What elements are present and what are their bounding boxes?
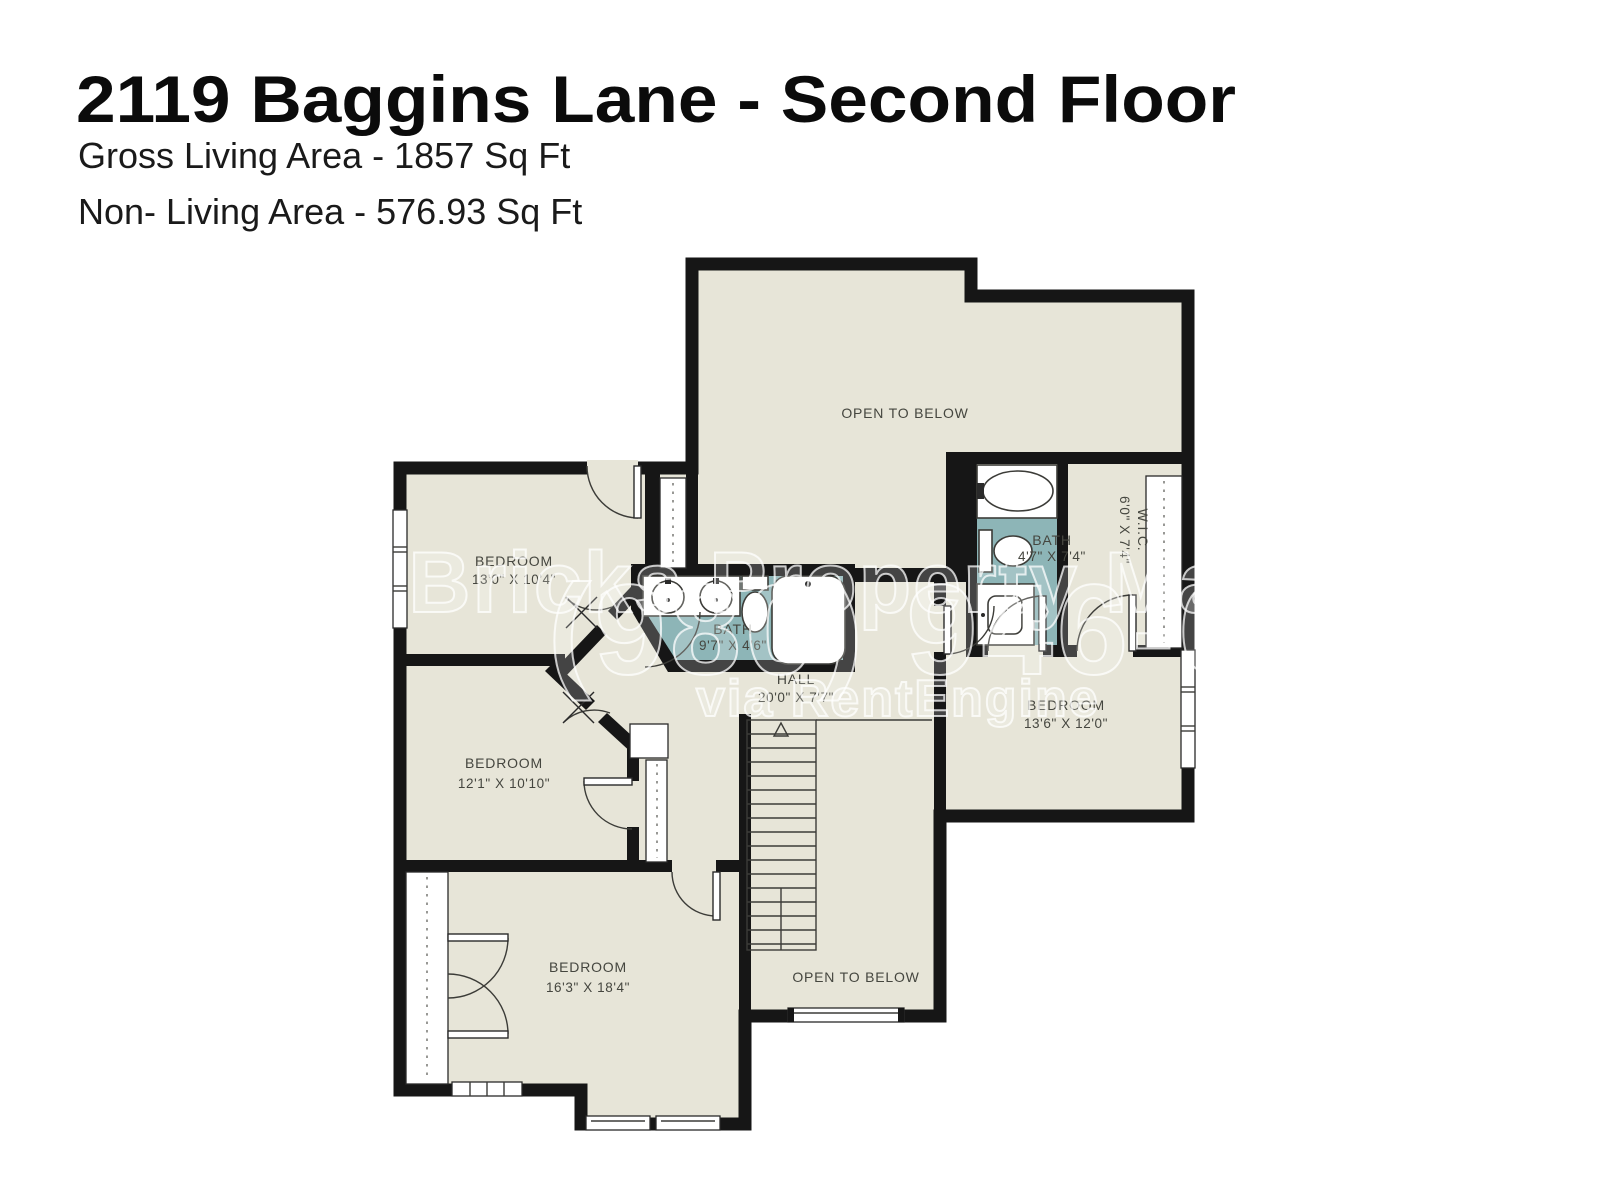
- floor-plan-canvas: 2119 Baggins Lane - Second Floor Gross L…: [0, 0, 1600, 1200]
- dims-bedroom-bottom: 16'3" X 18'4": [546, 980, 630, 995]
- gross-living-area: Gross Living Area - 1857 Sq Ft: [78, 135, 570, 176]
- window-bedroom-bottom-1: [452, 1082, 522, 1096]
- window-bedroom-bottom-3: [656, 1116, 720, 1130]
- non-living-area: Non- Living Area - 576.93 Sq Ft: [78, 191, 582, 232]
- window-open-below-bottom: [788, 1008, 904, 1022]
- floor-plan-page: 2119 Baggins Lane - Second Floor Gross L…: [0, 0, 1600, 1200]
- label-open-to-below-bottom: OPEN TO BELOW: [792, 969, 919, 985]
- window-bedroom-bottom-2: [586, 1116, 650, 1130]
- label-bedroom-mid-left: BEDROOM: [465, 755, 543, 771]
- watermark-line3: via RentEngine: [696, 670, 1100, 728]
- bathtub-right-icon: [977, 465, 1057, 518]
- bottom-bedroom-closet: [406, 872, 448, 1084]
- label-open-to-below-top: OPEN TO BELOW: [841, 405, 968, 421]
- page-title: 2119 Baggins Lane - Second Floor: [76, 62, 1236, 136]
- dims-bedroom-mid-left: 12'1" X 10'10": [458, 776, 550, 791]
- label-bedroom-bottom: BEDROOM: [549, 959, 627, 975]
